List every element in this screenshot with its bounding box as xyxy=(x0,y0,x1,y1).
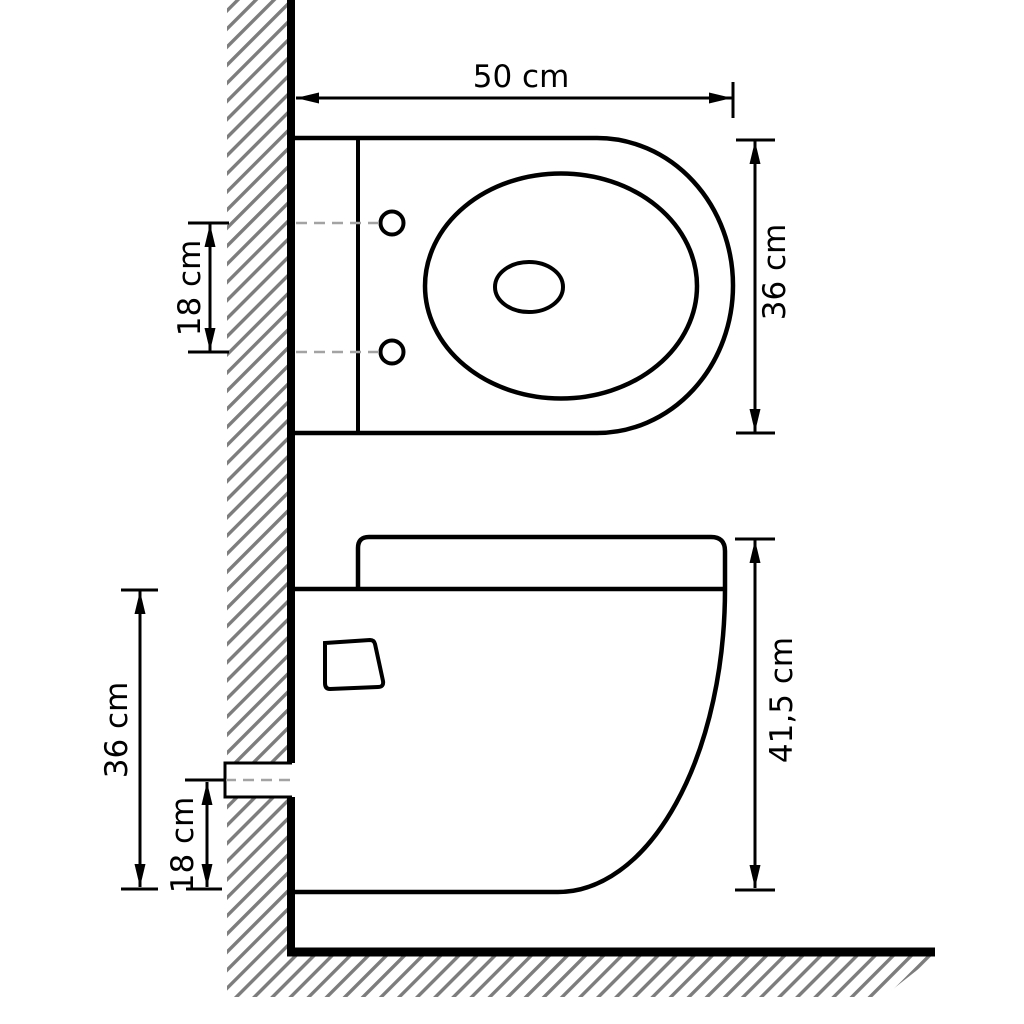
top-depth-label: 36 cm xyxy=(757,224,793,321)
arrow-depth-down xyxy=(750,409,761,432)
arrow-width-right xyxy=(709,93,732,104)
arrow-outlet-up xyxy=(202,782,213,805)
bowl-body-outline xyxy=(292,589,725,892)
toilet-dimension-diagram: 50 cm 36 cm 18 cm 41,5 cm 36 cm 18 cm xyxy=(0,0,1024,1024)
arrow-outlet-down xyxy=(202,864,213,887)
wall-hatch xyxy=(227,0,287,997)
arrow-bowl-down xyxy=(135,864,146,887)
arrow-depth-up xyxy=(750,141,761,164)
seat-lid-outline xyxy=(358,537,725,589)
mounting-hole-top xyxy=(381,212,404,235)
side-height-label: 41,5 cm xyxy=(764,637,800,763)
arrow-height-down xyxy=(750,865,761,888)
mounting-hole-centerlines-dashed xyxy=(296,223,380,352)
toilet-side-view xyxy=(292,537,725,892)
hole-spacing-label: 18 cm xyxy=(172,240,208,337)
flush-plate xyxy=(325,640,383,689)
arrow-bowl-up xyxy=(135,591,146,614)
side-outlet-offset-label: 18 cm xyxy=(165,797,201,894)
drawing: 50 cm 36 cm 18 cm 41,5 cm 36 cm 18 cm xyxy=(99,0,935,997)
mounting-hole-bottom xyxy=(381,341,404,364)
side-bowl-height-label: 36 cm xyxy=(99,682,135,779)
arrow-width-left xyxy=(296,93,319,104)
top-width-label: 50 cm xyxy=(473,59,570,95)
drain-hole-ellipse xyxy=(495,262,563,312)
toilet-top-view xyxy=(292,138,733,433)
floor-hatch xyxy=(287,956,935,997)
arrow-height-up xyxy=(750,540,761,563)
outlet-pipe xyxy=(225,763,294,797)
